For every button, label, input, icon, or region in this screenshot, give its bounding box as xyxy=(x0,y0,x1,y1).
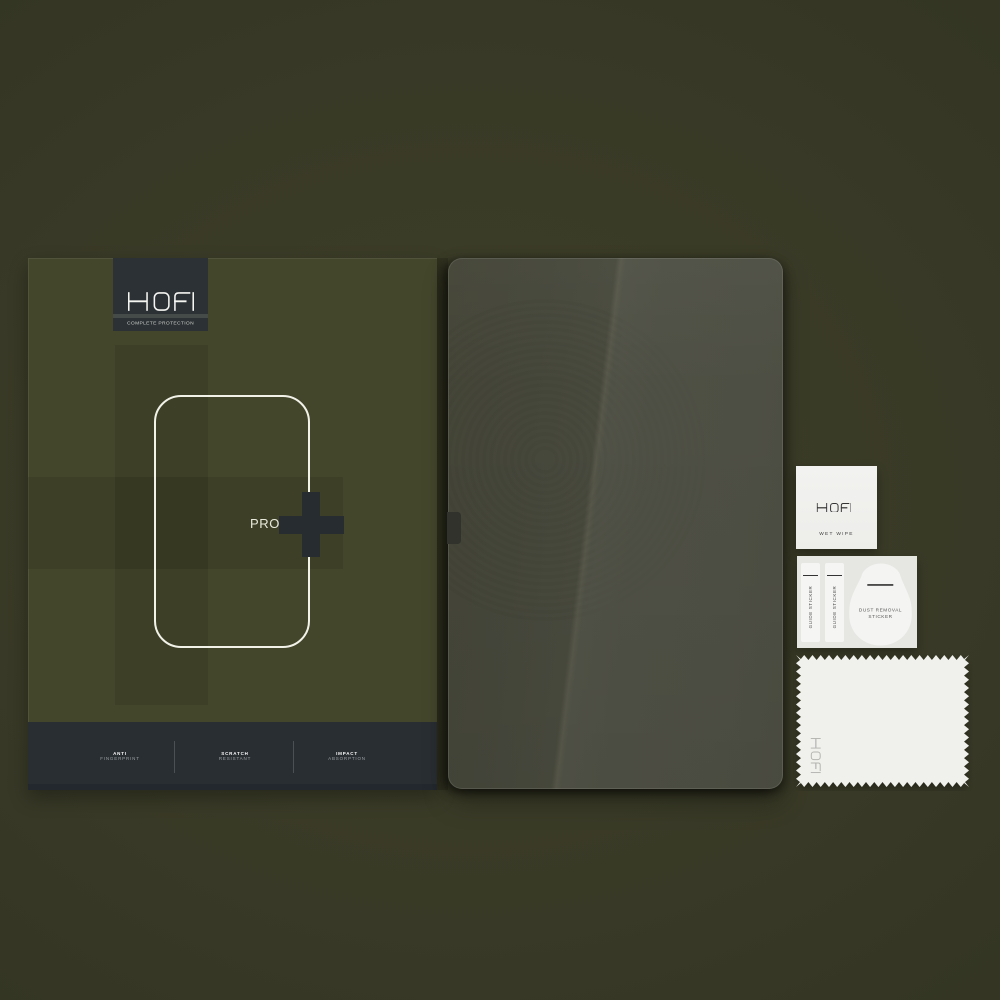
svg-text:STICKER: STICKER xyxy=(868,614,892,619)
svg-text:DUST REMOVAL: DUST REMOVAL xyxy=(859,608,902,613)
